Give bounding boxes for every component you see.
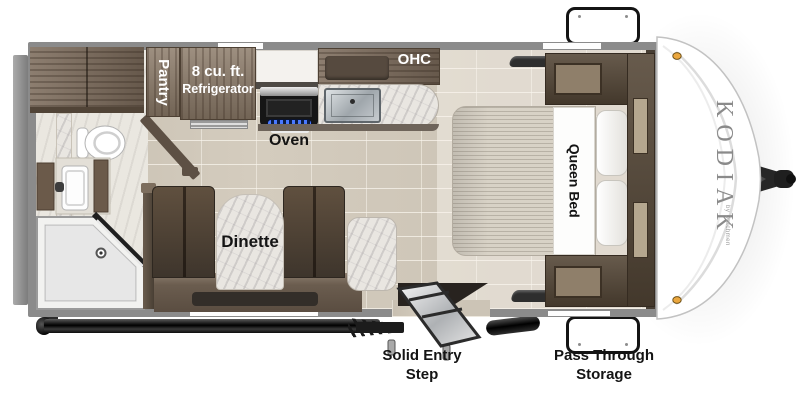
storage-label: Pass Through Storage — [538, 347, 670, 385]
bathroom-wall-stub — [182, 167, 198, 176]
counter-underside-shadow — [258, 124, 439, 131]
shower-drain-dot — [99, 251, 102, 254]
refrigerator-label: Refrigerator — [181, 82, 255, 96]
dinette-bench-left — [152, 186, 215, 278]
window-bottom-2 — [548, 311, 610, 316]
entry-step-label: Solid Entry Step — [358, 347, 486, 385]
vanity-cabinet-left — [37, 163, 54, 210]
bench-cushion-seam — [183, 187, 186, 277]
screw-dot — [578, 15, 581, 18]
range-back-counter — [256, 50, 318, 83]
refrigerator-vent — [190, 120, 248, 129]
shower-pan-shade — [45, 225, 136, 301]
dinette-label: Dinette — [221, 231, 279, 252]
pass-through-door-top — [566, 7, 640, 45]
dinette-table-center: Dinette — [216, 194, 284, 290]
ohc-label: OHC — [398, 51, 431, 68]
front-cap-group: KODIAK by Dutchmen — [630, 0, 800, 400]
brand-logo: KODIAK — [711, 100, 737, 237]
refrigerator: 8 cu. ft. Refrigerator — [180, 47, 256, 120]
hitch-coupler-tip — [786, 174, 796, 184]
oven-door-glass — [266, 99, 312, 117]
dinette-bench-right — [283, 186, 345, 278]
bathroom-overhead-cabinet — [30, 47, 144, 113]
queen-bed-sheet: Queen Bed — [553, 107, 595, 255]
bench-cushion-seam — [313, 187, 316, 277]
step-frame-bar — [356, 322, 404, 333]
cabinet-divider — [86, 47, 88, 107]
screw-dot — [625, 15, 628, 18]
bedroom-wardrobe-bottom — [545, 255, 633, 307]
overhead-cabinet: OHC — [318, 48, 440, 85]
bedroom-wardrobe-top — [545, 53, 633, 105]
oven-handle — [260, 87, 318, 96]
overhead-cabinet-panel — [325, 56, 389, 80]
bathroom-fixtures — [28, 108, 153, 313]
floorplan-canvas: Pantry 8 cu. ft. Refrigerator Oven OHC D… — [0, 0, 800, 400]
queen-bed-label: Queen Bed — [565, 144, 583, 218]
window-top-2 — [543, 43, 601, 49]
clearance-light-bottom — [673, 297, 681, 304]
dinette-floor-mat — [192, 292, 318, 306]
sink-drain-dot — [350, 99, 355, 104]
pillow-bottom — [596, 180, 628, 246]
storage-label-line2: Storage — [538, 366, 670, 385]
entry-step-label-line2: Step — [358, 366, 486, 385]
vanity-cabinet-right — [94, 160, 108, 212]
clearance-light-top — [673, 53, 681, 60]
oven-label: Oven — [254, 131, 324, 151]
kitchen-sink — [324, 88, 381, 123]
sink-basin-line — [331, 94, 374, 117]
entry-step-label-line1: Solid Entry — [358, 347, 486, 366]
brand-byline: by Dutchmen — [724, 205, 730, 246]
pantry-cabinet: Pantry — [146, 47, 180, 117]
front-cap — [657, 37, 761, 319]
pantry-label: Pantry — [155, 59, 172, 106]
wardrobe-panel — [554, 266, 602, 298]
awning-roller — [44, 319, 380, 333]
screw-dot — [578, 343, 581, 346]
rear-wall-edge — [13, 55, 28, 305]
pillow-top — [596, 110, 628, 176]
storage-label-line1: Pass Through — [538, 347, 670, 366]
screw-dot — [625, 343, 628, 346]
faucet — [55, 182, 64, 192]
refrigerator-size-label: 8 cu. ft. — [181, 63, 255, 80]
wardrobe-panel — [554, 63, 602, 95]
